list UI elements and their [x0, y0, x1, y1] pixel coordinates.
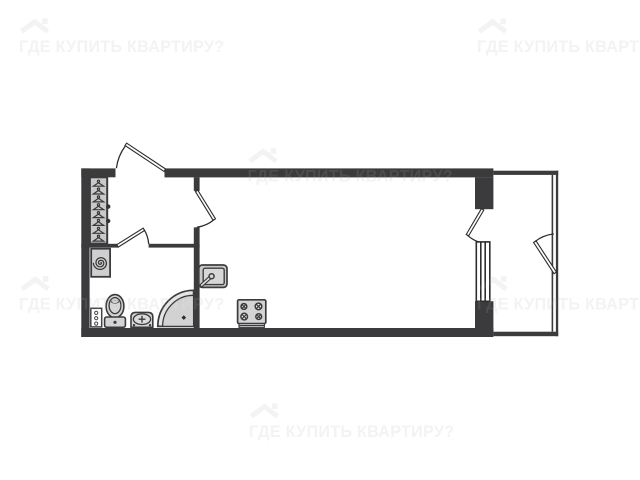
svg-text:ГДЕ КУПИТЬ КВАРТИРУ?: ГДЕ КУПИТЬ КВАРТИРУ?	[248, 167, 453, 185]
svg-text:ГДЕ КУПИТЬ КВАРТИРУ?: ГДЕ КУПИТЬ КВАРТИРУ?	[477, 38, 640, 56]
svg-text:ГДЕ КУПИТЬ КВАРТИРУ?: ГДЕ КУПИТЬ КВАРТИРУ?	[19, 295, 224, 313]
svg-text:ГДЕ КУПИТЬ КВАРТИРУ?: ГДЕ КУПИТЬ КВАРТИРУ?	[19, 38, 224, 56]
svg-text:ГДЕ КУПИТЬ КВАРТИРУ?: ГДЕ КУПИТЬ КВАРТИРУ?	[477, 295, 640, 313]
svg-text:ГДЕ КУПИТЬ КВАРТИРУ?: ГДЕ КУПИТЬ КВАРТИРУ?	[249, 423, 454, 441]
